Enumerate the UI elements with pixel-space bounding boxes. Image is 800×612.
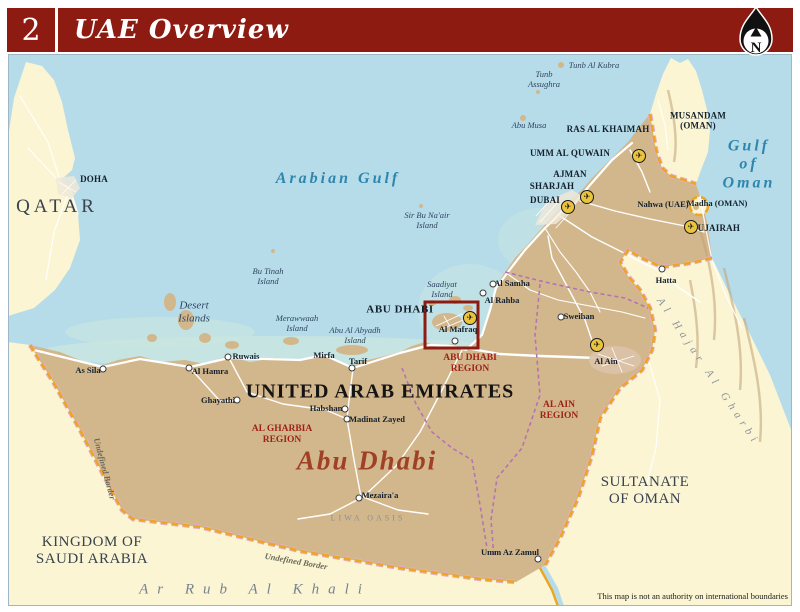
ghayathi-label: Ghayathi [201, 396, 235, 406]
map-plate: Arabian GulfGulf of OmanTunb Al KubraTun… [0, 0, 800, 612]
mirfa-label: Mirfa [313, 351, 334, 361]
al-samha-label: Al Samha [494, 279, 530, 289]
ghayathi-town-marker [234, 397, 241, 404]
abu-dhabi-airport-icon: ✈ [463, 311, 477, 325]
al-ain-airport-icon: ✈ [590, 338, 604, 352]
umm-az-zamul-label: Umm Az Zamul [481, 548, 539, 558]
umm-az-zamul-town-marker [535, 556, 542, 563]
sir-bu-naair-island-label: Sir Bu Na'air Island [404, 211, 449, 231]
dubai-label: DUBAI [530, 195, 560, 205]
sharjah-label: SHARJAH [530, 181, 574, 191]
al-rahba-label: Al Rahba [485, 296, 520, 306]
madinat-zayed-label: Madinat Zayed [349, 415, 405, 425]
mezairaa-label: Mezaira'a [362, 491, 399, 501]
map-labels-layer: Arabian GulfGulf of OmanTunb Al KubraTun… [0, 0, 800, 612]
uae-label: UNITED ARAB EMIRATES [246, 381, 515, 404]
ruwais-label: Ruwais [233, 352, 260, 362]
abu-dhabi-city-label: ABU DHABI [366, 304, 433, 317]
desert-islands-label: Desert Islands [178, 299, 210, 324]
fujairah-airport-icon: ✈ [684, 220, 698, 234]
al-gharbia-region-label: AL GHARBIA REGION [252, 424, 312, 446]
map-area: Arabian GulfGulf of OmanTunb Al KubraTun… [0, 0, 800, 612]
undefined-border-west-label: Undefined Border [91, 437, 117, 501]
sharjah-airport-icon: ✈ [580, 190, 594, 204]
abu-dhabi-script-label: Abu Dhabi [297, 445, 437, 476]
tunb-al-kubra-island-label: Tunb Al Kubra [569, 61, 619, 71]
umm-al-quwain-label: UMM AL QUWAIN [530, 148, 610, 158]
abu-al-abyadh-island-label: Abu Al Abyadh Island [329, 326, 380, 346]
madinat-zayed-town-marker [344, 416, 351, 423]
hatta-label: Hatta [656, 276, 677, 286]
as-sila-label: As Sila [75, 366, 100, 376]
habshan-label: Habshan [310, 404, 343, 414]
al-mafraq-town-marker [452, 338, 459, 345]
musandam-label: MUSANDAM (OMAN) [670, 111, 726, 132]
compass-n-label: N [751, 40, 762, 56]
tarif-town-marker [349, 365, 356, 372]
saadiyat-island-label: Saadiyat Island [427, 280, 457, 300]
nahwa-uae-label: Nahwa (UAE) [637, 200, 688, 210]
hatta-town-marker [659, 266, 666, 273]
al-mafraq-label: Al Mafraq [439, 325, 477, 335]
madha-oman-label: Madha (OMAN) [687, 199, 748, 209]
liwa-oasis-label: LIWA OASIS [331, 513, 406, 522]
north-compass-icon: N [734, 5, 778, 63]
as-sila-town-marker [100, 366, 107, 373]
dubai-airport-icon: ✈ [561, 200, 575, 214]
doha-label: DOHA [80, 174, 108, 184]
oman-label: SULTANATE OF OMAN [601, 474, 690, 509]
saudi-arabia-label: KINGDOM OF SAUDI ARABIA [36, 534, 148, 569]
habshan-town-marker [342, 406, 349, 413]
bu-tinah-island-label: Bu Tinah Island [253, 267, 284, 287]
merawwaah-island-label: Merawwaah Island [276, 314, 319, 334]
gulf-of-oman-label: Gulf of Oman [723, 137, 776, 192]
sweihan-label: Sweihan [564, 312, 595, 322]
tunb-assughra-island-label: Tunb Assughra [528, 70, 560, 90]
ras-al-khaimah-airport-icon: ✈ [632, 149, 646, 163]
ar-rub-al-khali-label: Ar Rub Al Khali [139, 581, 371, 598]
abu-musa-island-label: Abu Musa [512, 121, 547, 131]
sweihan-town-marker [558, 314, 565, 321]
map-disclaimer: This map is not an authority on internat… [597, 592, 788, 602]
abu-dhabi-region-label: ABU DHABI REGION [443, 353, 497, 375]
arabian-gulf-label: Arabian Gulf [276, 170, 400, 188]
al-ain-region-label: AL AIN REGION [540, 400, 579, 422]
fujairah-label: FUJAIRAH [692, 223, 740, 233]
al-samha-town-marker [490, 281, 497, 288]
ajman-label: AJMAN [553, 169, 587, 179]
al-ain-label: Al Ain [594, 357, 617, 367]
ras-al-khaimah-label: RAS AL KHAIMAH [567, 124, 650, 134]
qatar-label: QATAR [16, 196, 98, 218]
ruwais-town-marker [225, 354, 232, 361]
al-hamra-town-marker [186, 365, 193, 372]
al-hajar-al-gharbi-label: Al Hajar Al Gharbi [654, 296, 763, 449]
undefined-border-south-label: Undefined Border [264, 552, 328, 573]
al-hamra-label: Al Hamra [192, 367, 229, 377]
mezairaa-town-marker [356, 495, 363, 502]
al-rahba-town-marker [480, 290, 487, 297]
